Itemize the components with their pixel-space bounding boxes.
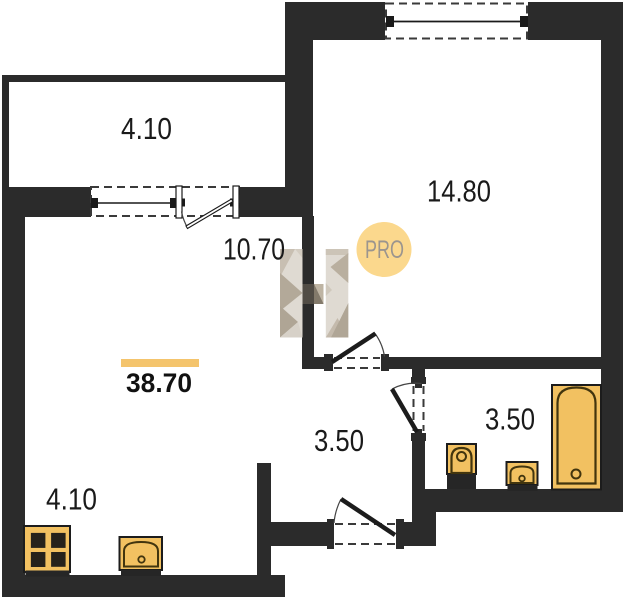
svg-text:PRO: PRO	[365, 236, 404, 264]
svg-text:38.70: 38.70	[126, 368, 192, 398]
svg-text:3.50: 3.50	[314, 423, 364, 458]
svg-text:4.10: 4.10	[46, 482, 97, 517]
svg-text:14.80: 14.80	[427, 174, 491, 209]
svg-text:10.70: 10.70	[223, 232, 285, 267]
svg-text:4.10: 4.10	[121, 111, 172, 146]
svg-text:3.50: 3.50	[485, 402, 535, 437]
